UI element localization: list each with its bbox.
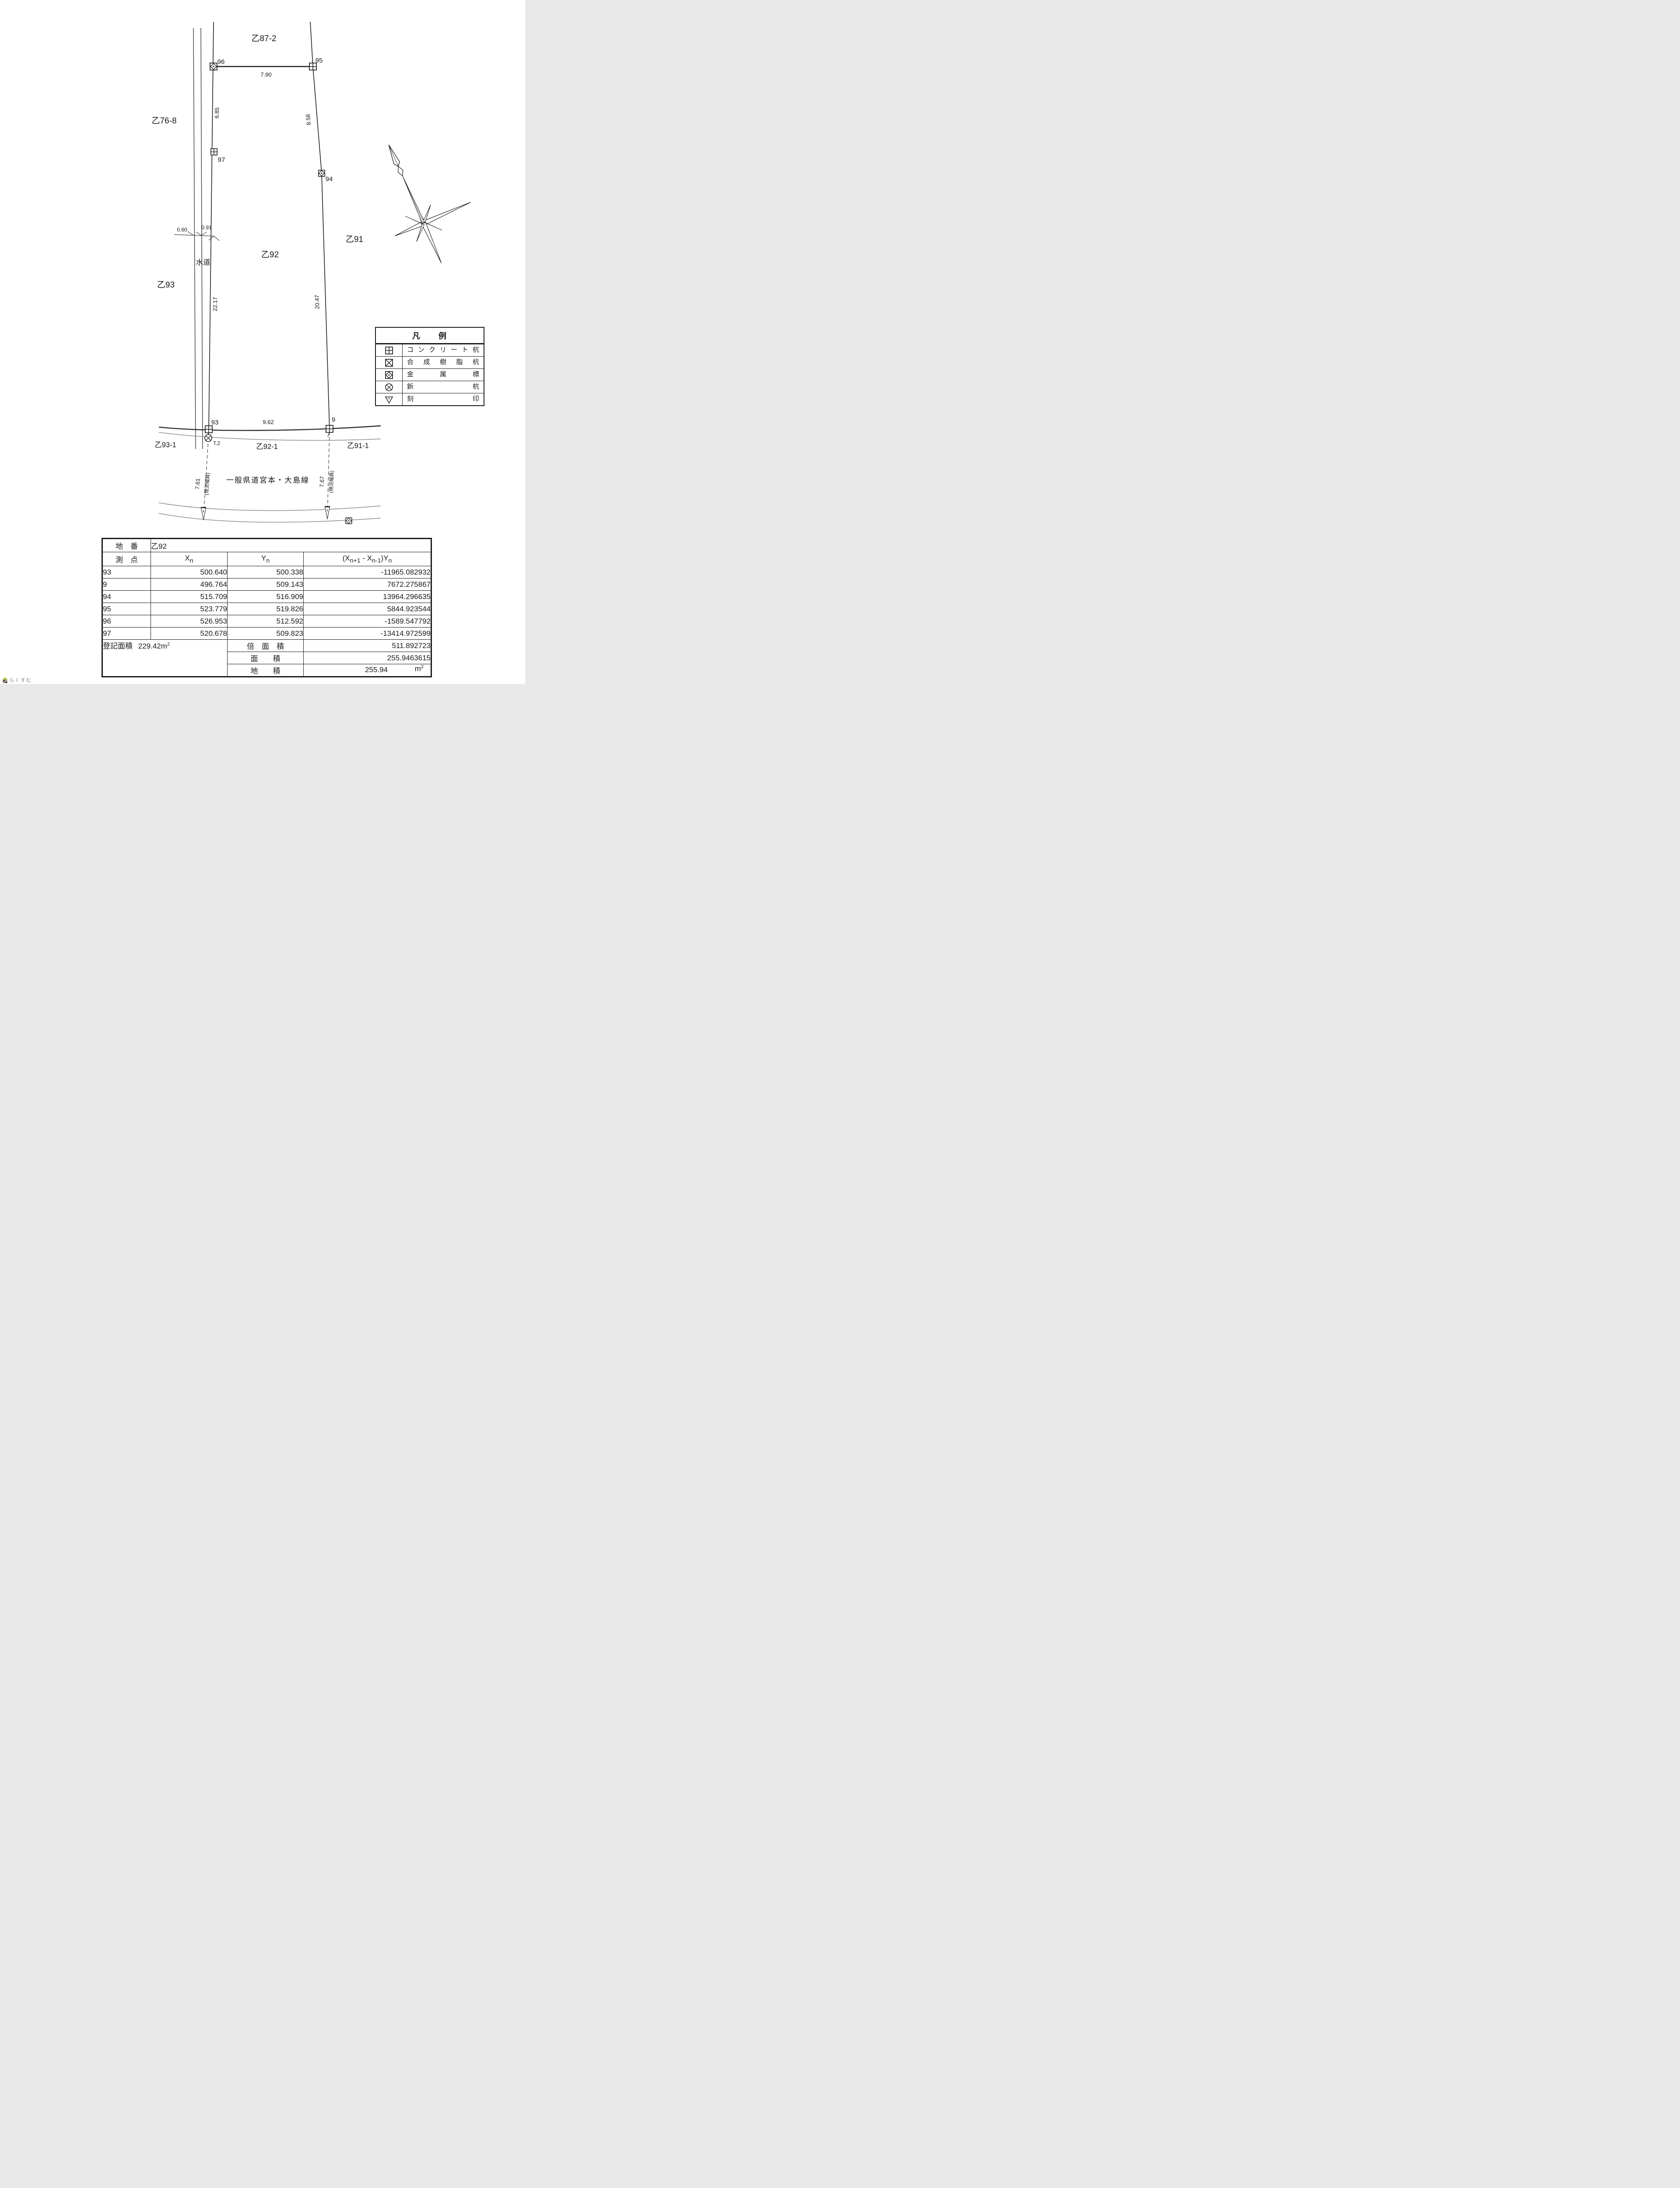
legend-title: 凡 例 xyxy=(376,328,484,344)
point-id: 95 xyxy=(102,603,151,615)
legend-label: コンクリート杭 xyxy=(403,344,484,356)
parcel-label-93: 乙93 xyxy=(157,281,175,290)
legend-row-metal: 金属標 xyxy=(376,368,484,381)
registered-area-unit: m xyxy=(161,642,167,650)
area-label: 面 積 xyxy=(228,652,304,664)
dim-9-62: 9.62 xyxy=(263,419,274,425)
legend-row-nail: 鋲杭 xyxy=(376,381,484,393)
area-value: 255.9463615 xyxy=(304,652,431,664)
watermark-logo: らくすむ xyxy=(2,677,32,684)
table-row: 94 515.709 516.909 13964.296635 xyxy=(102,591,431,603)
cross-value: 13964.296635 xyxy=(304,591,431,603)
double-area-label: 倍 面 積 xyxy=(228,640,304,652)
carved-mark-icon xyxy=(201,508,206,520)
table-row: 96 526.953 512.592 -1589.547792 xyxy=(102,615,431,628)
registered-area-label: 登記面積 xyxy=(103,642,133,650)
road-name-label: 一般県道宮本・大島線 xyxy=(226,476,309,484)
xn-sub: n xyxy=(190,557,193,564)
note-t2: T.2 xyxy=(213,440,220,446)
unit-m: m xyxy=(415,665,421,673)
table-header-row: 測 点 Xn Yn (Xn+1 - Xn-1)Yn xyxy=(102,552,431,566)
parcel-label-93-1: 乙93-1 xyxy=(154,441,176,449)
point-id: 93 xyxy=(102,566,151,579)
header-xn: Xn xyxy=(151,552,228,566)
road-edge-upper xyxy=(159,426,381,431)
metal-marker-icon xyxy=(210,63,217,70)
point-label-95: 95 xyxy=(316,57,323,64)
dim-7-90: 7.90 xyxy=(260,71,271,78)
point-id: 94 xyxy=(102,591,151,603)
point-label-97: 97 xyxy=(218,156,225,164)
point-label-9: 9 xyxy=(332,416,335,424)
house-icon xyxy=(2,677,8,683)
double-area-value: 511.892723 xyxy=(304,640,431,652)
width-note-right: (現況幅員) xyxy=(328,470,334,493)
parcel-area-value: 255.94 xyxy=(365,666,388,674)
legend-row-carved: 刻印 xyxy=(376,393,484,405)
parcel-label-91-1: 乙91-1 xyxy=(347,442,369,450)
legend-row-concrete: コンクリート杭 xyxy=(376,344,484,356)
point-id: 9 xyxy=(102,579,151,591)
parcel-area-value-cell: 255.94 m2 xyxy=(304,664,431,677)
parcel-label-92: 乙92 xyxy=(261,250,279,259)
cross-value: 7672.275867 xyxy=(304,579,431,591)
dim-0-60: 0.60 xyxy=(177,227,187,233)
metal-marker-icon xyxy=(376,369,403,381)
water-line-right xyxy=(201,28,203,449)
carved-mark-icon xyxy=(376,393,403,405)
xn-base: X xyxy=(185,554,189,562)
dim-7-67: 7.67 xyxy=(319,476,326,487)
concrete-pile-icon xyxy=(326,425,333,432)
coordinate-table: 地 番 乙92 測 点 Xn Yn (Xn+1 - Xn-1)Yn 93 500… xyxy=(102,538,432,677)
concrete-pile-icon xyxy=(205,426,212,433)
yn-base: Y xyxy=(261,554,266,562)
dim-20-47: 20.47 xyxy=(313,295,320,309)
registered-area-cell: 登記面積 229.42m2 xyxy=(102,640,228,677)
xn-value: 523.779 xyxy=(151,603,228,615)
dim-7-61: 7.61 xyxy=(194,478,201,490)
legend-label: 金属標 xyxy=(403,369,484,381)
width-note-left: (現況幅員) xyxy=(203,473,210,495)
xn-value: 496.764 xyxy=(151,579,228,591)
table-row: 95 523.779 519.826 5844.923544 xyxy=(102,603,431,615)
parcel-label-91: 乙91 xyxy=(346,235,363,244)
water-width-dimension xyxy=(174,231,219,241)
yn-value: 512.592 xyxy=(228,615,304,628)
header-cross: (Xn+1 - Xn-1)Yn xyxy=(304,552,431,566)
water-supply-label: 水道 xyxy=(196,258,210,266)
far-road-edge-upper xyxy=(159,503,381,511)
metal-marker-icon xyxy=(319,170,325,176)
table-row: 97 520.678 509.823 -13414.972599 xyxy=(102,628,431,640)
cross-s1: n+1 xyxy=(350,557,361,564)
concrete-pile-icon xyxy=(376,344,403,356)
parcel-area-label: 地 積 xyxy=(228,664,304,677)
registered-area-sup: 2 xyxy=(167,642,170,647)
point-label-96: 96 xyxy=(217,58,225,66)
survey-drawing-sheet: 乙87-2 乙76-8 乙93 乙92 乙91 乙93-1 乙92-1 乙91-… xyxy=(0,0,525,684)
parcel-label-87-2: 乙87-2 xyxy=(251,34,276,43)
cross-p3: )Y xyxy=(381,554,389,562)
water-line-left xyxy=(193,28,196,449)
cross-value: 5844.923544 xyxy=(304,603,431,615)
table-row: 9 496.764 509.143 7672.275867 xyxy=(102,579,431,591)
cross-s3: n xyxy=(389,557,392,564)
xn-value: 526.953 xyxy=(151,615,228,628)
cross-p1: (X xyxy=(343,554,350,562)
parcel-number-value: 乙92 xyxy=(151,539,431,552)
point-id: 97 xyxy=(102,628,151,640)
xn-value: 520.678 xyxy=(151,628,228,640)
yn-value: 509.823 xyxy=(228,628,304,640)
cross-value: -13414.972599 xyxy=(304,628,431,640)
legend-label: 鋲杭 xyxy=(403,381,484,393)
legend-label: 刻印 xyxy=(403,393,484,405)
yn-value: 516.909 xyxy=(228,591,304,603)
resin-pile-icon xyxy=(376,357,403,368)
cross-value: -11965.082932 xyxy=(304,566,431,579)
yn-value: 519.826 xyxy=(228,603,304,615)
yn-sub: n xyxy=(266,557,270,564)
legend-table: 凡 例 コンクリート杭 合成樹脂杭 金属標 鋲杭 xyxy=(375,327,484,406)
point-label-94: 94 xyxy=(326,175,333,183)
point-label-93: 93 xyxy=(211,419,219,426)
metal-marker-icon xyxy=(346,518,352,524)
dim-6-85: 6.85 xyxy=(214,107,220,119)
registered-area-value: 229.42 xyxy=(138,642,161,650)
concrete-pile-icon xyxy=(211,149,217,155)
nail-pile-icon xyxy=(205,435,212,442)
watermark-text: らくすむ xyxy=(9,677,32,684)
xn-value: 515.709 xyxy=(151,591,228,603)
unit-sup: 2 xyxy=(421,664,424,670)
parcel-number-label: 地 番 xyxy=(102,539,151,552)
cross-p2: - X xyxy=(361,554,372,562)
dim-0-91: 0.91 xyxy=(201,224,212,231)
cross-s2: n-1 xyxy=(372,557,381,564)
yn-value: 500.338 xyxy=(228,566,304,579)
yn-value: 509.143 xyxy=(228,579,304,591)
parcel-label-92-1: 乙92-1 xyxy=(256,443,278,451)
parcel-label-76-8: 乙76-8 xyxy=(151,116,176,126)
dim-22-17: 22.17 xyxy=(212,297,219,312)
north-compass-icon xyxy=(360,124,489,276)
carved-mark-icon xyxy=(325,507,330,519)
legend-row-resin: 合成樹脂杭 xyxy=(376,356,484,368)
header-yn: Yn xyxy=(228,552,304,566)
nail-pile-icon xyxy=(376,381,403,393)
xn-value: 500.640 xyxy=(151,566,228,579)
double-area-row: 登記面積 229.42m2 倍 面 積 511.892723 xyxy=(102,640,431,652)
road-edge-lower xyxy=(159,432,381,440)
parcel-area-unit: m2 xyxy=(415,664,424,673)
header-point: 測 点 xyxy=(102,552,151,566)
table-row: 93 500.640 500.338 -11965.082932 xyxy=(102,566,431,579)
cross-value: -1589.547792 xyxy=(304,615,431,628)
dim-8-58: 8.58 xyxy=(305,114,312,125)
east-boundary-line xyxy=(310,22,330,429)
legend-label: 合成樹脂杭 xyxy=(403,357,484,368)
parcel-number-row: 地 番 乙92 xyxy=(102,539,431,552)
point-id: 96 xyxy=(102,615,151,628)
